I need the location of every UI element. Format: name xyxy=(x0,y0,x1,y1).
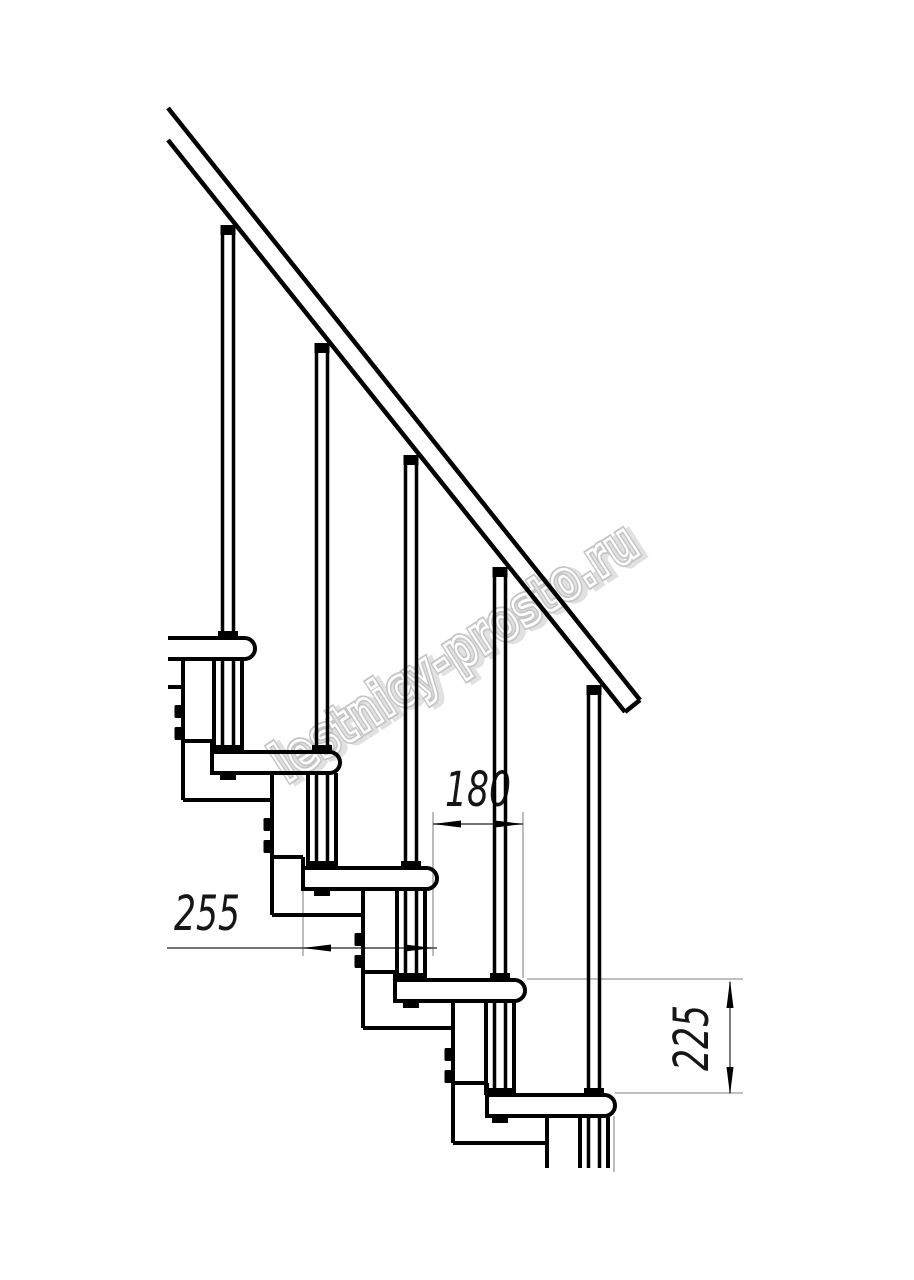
dimension-value-going: 180 xyxy=(445,762,511,818)
under-tread-nut-5 xyxy=(492,1116,508,1123)
baluster-2 xyxy=(317,352,328,866)
bracket-shelf-4 xyxy=(363,972,395,980)
bolt xyxy=(355,933,364,946)
tread-1 xyxy=(168,638,255,659)
column-nut-top-2 xyxy=(216,745,240,753)
staircase-side-view-drawing: lestnicy-prosto.ru lestnicy-prosto.ru le… xyxy=(0,0,914,1280)
baluster-base-5 xyxy=(584,1088,604,1096)
arrowhead-rise-top xyxy=(727,980,734,1008)
baluster-1 xyxy=(223,234,234,751)
column-nut-top-5 xyxy=(488,1088,512,1096)
arrowhead-rise-bottom xyxy=(727,1067,734,1095)
bracket-shelf-3 xyxy=(272,857,303,868)
bolt xyxy=(175,705,184,718)
bolt xyxy=(445,1070,454,1083)
baluster-base-2 xyxy=(312,745,332,753)
column-4 xyxy=(486,1001,514,1095)
column-3 xyxy=(397,889,425,980)
under-tread-nut-4 xyxy=(403,1001,419,1008)
staircase-drawing-page: lestnicy-prosto.ru lestnicy-prosto.ru le… xyxy=(0,0,914,1280)
rail-fitting-3 xyxy=(404,455,419,465)
tread-5 xyxy=(487,1095,615,1116)
rail-fitting-2 xyxy=(315,343,330,353)
column-1 xyxy=(214,659,242,752)
under-tread-nut-2 xyxy=(220,773,236,780)
arrowhead-going-left xyxy=(433,821,461,828)
dimension-going: 180 xyxy=(433,762,523,828)
tread-4 xyxy=(395,980,525,1001)
column-nut-top-3 xyxy=(310,861,334,869)
bolt xyxy=(445,1048,454,1061)
dimension-rise: 225 xyxy=(664,980,734,1095)
bolt xyxy=(264,840,273,853)
baluster-base-4 xyxy=(490,973,510,981)
bolt xyxy=(355,955,364,968)
arrowhead-run-right xyxy=(405,945,433,952)
baluster-base-1 xyxy=(218,631,238,639)
column-5 xyxy=(580,1116,608,1168)
tread-3 xyxy=(303,868,437,889)
rail-fitting-5 xyxy=(587,685,602,695)
handrail-end-cap xyxy=(625,700,640,712)
baluster-base-3 xyxy=(401,861,421,869)
bracket-shelf-5 xyxy=(453,1083,487,1095)
rail-fitting-4 xyxy=(493,567,508,577)
rail-fitting-1 xyxy=(221,225,236,235)
under-tread-nut-3 xyxy=(314,889,330,896)
bracket-shelf-2 xyxy=(183,741,212,752)
column-nut-top-4 xyxy=(399,973,423,981)
bolt xyxy=(264,818,273,831)
arrowhead-going-right xyxy=(495,821,523,828)
dimension-value-rise: 225 xyxy=(664,1005,720,1071)
bolt xyxy=(175,727,184,740)
arrowhead-run-left xyxy=(303,945,331,952)
dimension-value-run: 255 xyxy=(174,886,240,942)
column-2 xyxy=(308,773,336,868)
handrail-lower-edge xyxy=(168,140,625,712)
